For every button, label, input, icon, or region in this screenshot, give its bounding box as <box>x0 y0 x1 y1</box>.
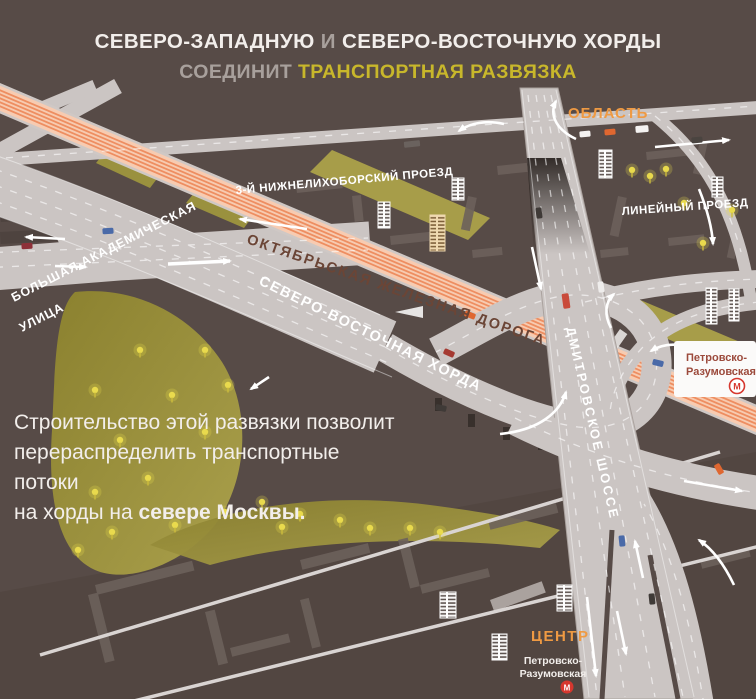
metro-station-line2: Разумовская <box>686 366 756 378</box>
label-oblast: ОБЛАСТЬ <box>568 105 648 122</box>
title-and: И <box>321 30 336 53</box>
car <box>579 131 590 138</box>
metro-callout-right: Петровско- Разумовская М <box>674 341 756 397</box>
title-nw-chord: СЕВЕРО-ЗАПАДНУЮ <box>95 30 315 53</box>
car <box>102 228 113 235</box>
title-ne-chord: СЕВЕРО-ВОСТОЧНУЮ ХОРДЫ <box>342 30 661 53</box>
label-centr: ЦЕНТР <box>531 628 589 645</box>
title-connect: СОЕДИНИТ <box>179 61 292 83</box>
building-white <box>599 150 612 178</box>
svg-text:М: М <box>564 684 571 693</box>
building-white <box>378 202 390 228</box>
building-white <box>712 177 723 197</box>
desc-line3: на хорды на <box>14 501 139 524</box>
building-white <box>492 634 507 660</box>
car <box>618 535 625 547</box>
building-white <box>729 289 739 321</box>
car <box>604 129 615 136</box>
building-white <box>452 178 464 200</box>
car <box>21 243 32 250</box>
metro-station-line1: Петровско- <box>686 352 747 364</box>
building-white <box>557 585 572 611</box>
desc-line1: Строительство этой развязки позволит <box>14 411 394 434</box>
description-text: Строительство этой развязки позволит пер… <box>14 408 404 528</box>
header: СЕВЕРО-ЗАПАДНУЮ И СЕВЕРО-ВОСТОЧНУЮ ХОРДЫ… <box>0 0 756 84</box>
desc-line3-bold: севере Москвы. <box>139 501 306 524</box>
map: ОКТЯБРЬСКАЯ ЖЕЛЕЗНАЯ ДОРОГА СЕВЕРО-ВОСТО… <box>0 0 756 699</box>
svg-text:М: М <box>733 382 741 392</box>
car <box>691 137 702 144</box>
metro-station-line1: Петровско- <box>524 655 583 667</box>
title-interchange: ТРАНСПОРТНАЯ РАЗВЯЗКА <box>298 61 577 83</box>
car <box>648 593 655 605</box>
van <box>635 125 649 133</box>
metro-station-line2: Разумовская <box>520 668 587 680</box>
building-white <box>440 592 456 618</box>
infographic: ОКТЯБРЬСКАЯ ЖЕЛЕЗНАЯ ДОРОГА СЕВЕРО-ВОСТО… <box>0 0 756 699</box>
desc-line2: перераспределить транспортные потоки <box>14 441 339 494</box>
title-line1: СЕВЕРО-ЗАПАДНУЮ И СЕВЕРО-ВОСТОЧНУЮ ХОРДЫ <box>0 30 756 54</box>
building-cream <box>430 215 445 251</box>
building-white <box>706 288 717 324</box>
title-line2: СОЕДИНИТ ТРАНСПОРТНАЯ РАЗВЯЗКА <box>0 61 756 84</box>
